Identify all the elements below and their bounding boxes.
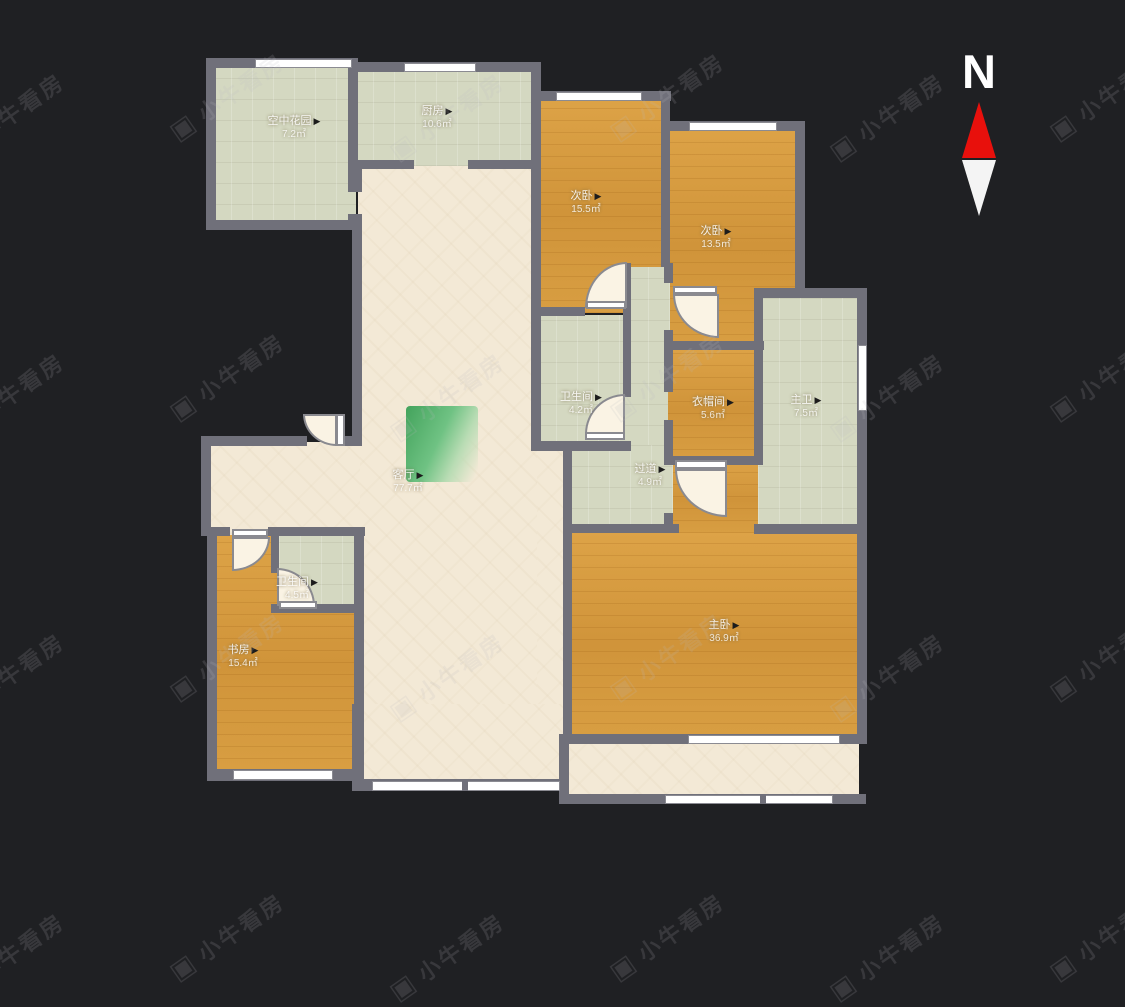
camera-logo-icon: ▣ <box>163 666 203 706</box>
room-area: 10.6㎡ <box>422 118 453 132</box>
window-divider <box>760 795 766 804</box>
room-label-bedroom-north: 次卧▶ 15.5㎡ <box>571 189 602 217</box>
wall <box>206 220 358 230</box>
wall <box>345 436 362 446</box>
room-area: 4.5㎡ <box>276 589 318 603</box>
wall <box>354 527 364 779</box>
watermark: ▣小牛看房 <box>0 65 71 168</box>
wall <box>664 345 673 392</box>
label-arrow-icon: ▶ <box>595 392 602 402</box>
wall <box>207 527 217 779</box>
watermark: ▣小牛看房 <box>1043 325 1125 428</box>
camera-logo-icon: ▣ <box>163 386 203 426</box>
room-name: 卫生间 <box>560 391 593 403</box>
label-arrow-icon: ▶ <box>595 191 602 201</box>
label-arrow-icon: ▶ <box>727 397 734 407</box>
door-study <box>232 529 268 537</box>
room-label-study: 书房▶ 15.4㎡ <box>228 643 259 671</box>
door-bedroom-north <box>586 301 626 309</box>
room-name: 客厅 <box>393 469 415 481</box>
camera-logo-icon: ▣ <box>383 966 423 1006</box>
wall <box>352 168 362 192</box>
camera-logo-icon: ▣ <box>1043 106 1083 146</box>
room-name: 空中花园 <box>268 115 312 127</box>
watermark: ▣小牛看房 <box>163 325 291 428</box>
room-area: 15.5㎡ <box>571 203 602 217</box>
window <box>556 92 642 101</box>
watermark: ▣小牛看房 <box>163 885 291 988</box>
watermark: ▣小牛看房 <box>383 905 511 1007</box>
wall <box>754 341 763 465</box>
room-area: 15.4㎡ <box>228 657 259 671</box>
room-label-bathroom-small: 卫生间▶ 4.5㎡ <box>276 575 318 603</box>
room-name: 衣帽间 <box>692 396 725 408</box>
floor-plan: 空中花园▶ 7.2㎡ 厨房▶ 10.6㎡ 次卧▶ 15.5㎡ 次卧▶ 13.5㎡… <box>0 0 1125 844</box>
wall <box>795 121 805 297</box>
room-area: 13.5㎡ <box>701 238 732 252</box>
door-bathroom-middle <box>585 432 625 440</box>
label-arrow-icon: ▶ <box>733 620 740 630</box>
window <box>689 122 777 131</box>
room-area: 77.7㎡ <box>393 482 424 496</box>
watermark: ▣小牛看房 <box>1043 605 1125 708</box>
room-name: 卫生间 <box>276 576 309 588</box>
wall <box>268 527 365 536</box>
room-label-bedroom-east: 次卧▶ 13.5㎡ <box>701 224 732 252</box>
wall <box>664 263 673 283</box>
wall <box>352 214 362 444</box>
camera-logo-icon: ▣ <box>823 126 863 166</box>
room-area: 5.6㎡ <box>692 409 734 423</box>
compass-north-label: N <box>955 48 1003 96</box>
room-name: 过道 <box>635 463 657 475</box>
watermark: ▣小牛看房 <box>0 345 71 448</box>
window <box>688 735 840 744</box>
window-divider <box>462 781 468 791</box>
room-entry-corridor <box>207 442 360 536</box>
label-arrow-icon: ▶ <box>417 470 424 480</box>
window <box>233 770 333 780</box>
window <box>255 59 352 68</box>
camera-logo-icon: ▣ <box>823 966 863 1006</box>
room-name: 主卫 <box>791 394 813 406</box>
camera-logo-icon: ▣ <box>1043 666 1083 706</box>
room-name: 次卧 <box>571 190 593 202</box>
wall <box>206 58 216 230</box>
camera-logo-icon: ▣ <box>1043 386 1083 426</box>
watermark: ▣小牛看房 <box>1043 885 1125 988</box>
door-master-bedroom <box>675 460 727 469</box>
label-arrow-icon: ▶ <box>725 226 732 236</box>
wall <box>531 91 541 451</box>
window <box>404 63 476 72</box>
wall <box>754 524 866 534</box>
wall <box>664 513 673 528</box>
wall <box>664 341 764 350</box>
room-sky-garden <box>210 62 356 226</box>
room-label-sky-garden: 空中花园▶ 7.2㎡ <box>268 114 321 142</box>
wall <box>563 524 679 533</box>
room-label-living-room: 客厅▶ 77.7㎡ <box>393 468 424 496</box>
room-name: 厨房 <box>422 105 444 117</box>
room-label-hallway: 过道▶ 4.9㎡ <box>635 462 666 490</box>
window <box>858 345 867 411</box>
wall <box>271 531 279 573</box>
label-arrow-icon: ▶ <box>314 116 321 126</box>
window <box>665 795 833 804</box>
room-label-master-bath: 主卫▶ 7.5㎡ <box>791 393 822 421</box>
wall <box>563 441 572 533</box>
compass-needle-north-icon <box>962 102 996 158</box>
room-label-cloakroom: 衣帽间▶ 5.6㎡ <box>692 395 734 423</box>
room-living-east <box>537 449 565 712</box>
room-area: 7.2㎡ <box>268 128 321 142</box>
wall <box>201 436 307 446</box>
camera-logo-icon: ▣ <box>1043 946 1083 986</box>
watermark: ▣小牛看房 <box>0 625 71 728</box>
watermark: ▣小牛看房 <box>823 905 951 1007</box>
room-area: 7.5㎡ <box>791 407 822 421</box>
room-living-south <box>358 704 563 784</box>
camera-logo-icon: ▣ <box>603 946 643 986</box>
wall <box>623 315 631 397</box>
wall <box>201 436 211 536</box>
room-balcony-south <box>567 738 859 798</box>
label-arrow-icon: ▶ <box>659 464 666 474</box>
room-name: 次卧 <box>701 225 723 237</box>
watermark: ▣小牛看房 <box>603 885 731 988</box>
camera-logo-icon: ▣ <box>163 106 203 146</box>
room-name: 主卧 <box>709 619 731 631</box>
label-arrow-icon: ▶ <box>252 645 259 655</box>
wall <box>563 533 572 743</box>
watermark: ▣小牛看房 <box>0 905 71 1007</box>
room-area: 36.9㎡ <box>709 632 740 646</box>
wall <box>754 288 866 298</box>
camera-logo-icon: ▣ <box>163 946 203 986</box>
watermark: ▣小牛看房 <box>823 65 951 168</box>
room-name: 书房 <box>228 644 250 656</box>
room-label-bathroom-middle: 卫生间▶ 4.2㎡ <box>560 390 602 418</box>
room-area: 4.9㎡ <box>635 476 666 490</box>
compass: N <box>955 48 1003 216</box>
room-area: 4.2㎡ <box>560 404 602 418</box>
watermark: ▣小牛看房 <box>1043 45 1125 148</box>
label-arrow-icon: ▶ <box>446 106 453 116</box>
label-arrow-icon: ▶ <box>311 577 318 587</box>
wall <box>531 307 585 316</box>
wall <box>531 441 631 451</box>
compass-needle-south-icon <box>962 160 996 216</box>
room-label-master-bedroom: 主卧▶ 36.9㎡ <box>709 618 740 646</box>
label-arrow-icon: ▶ <box>815 395 822 405</box>
door-bedroom-east <box>673 286 717 294</box>
room-label-kitchen: 厨房▶ 10.6㎡ <box>422 104 453 132</box>
door-entry <box>336 414 345 446</box>
